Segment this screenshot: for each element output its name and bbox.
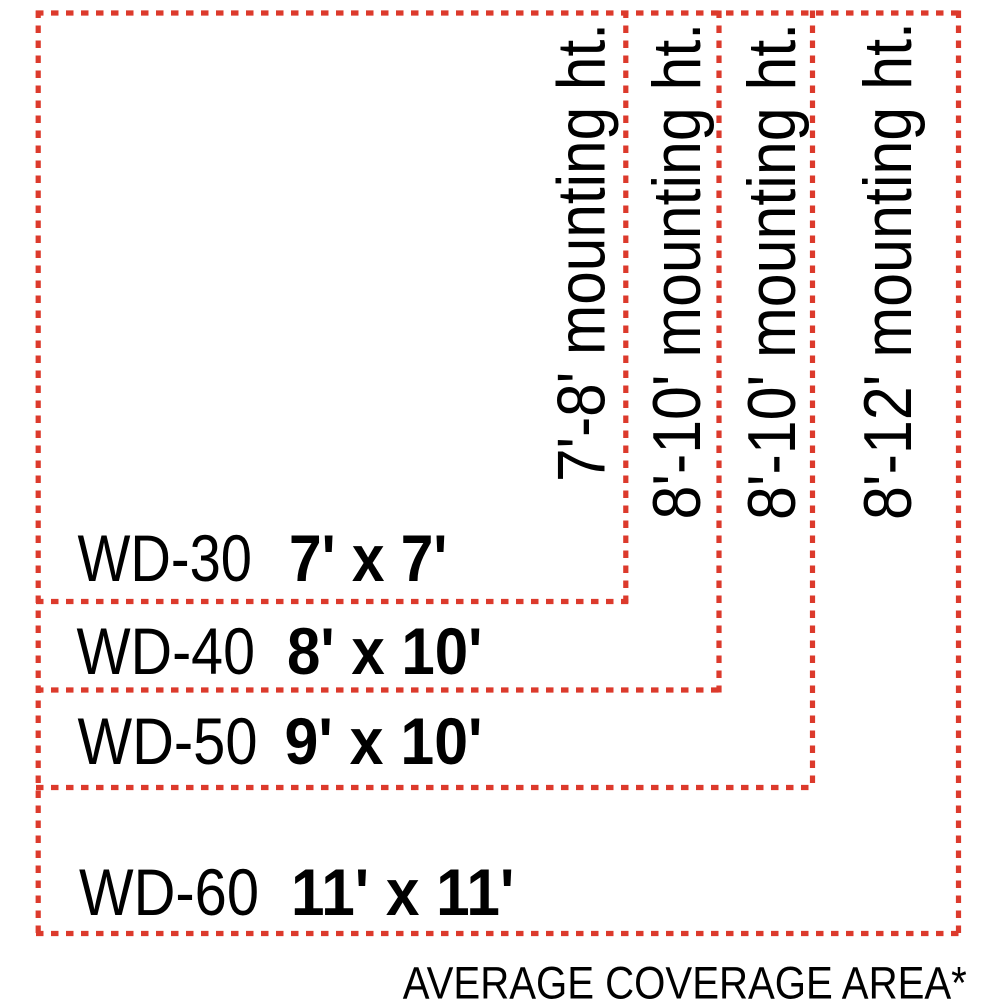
svg-text:AVERAGE COVERAGE AREA*: AVERAGE COVERAGE AREA* [403, 958, 967, 1000]
svg-text:8'-10' mounting ht.: 8'-10' mounting ht. [639, 23, 715, 520]
svg-text:8'-12' mounting ht.: 8'-12' mounting ht. [850, 22, 926, 520]
svg-text:WD-60: WD-60 [79, 855, 259, 929]
svg-text:8'-10' mounting ht.: 8'-10' mounting ht. [734, 23, 810, 520]
svg-text:7' x 7': 7' x 7' [289, 521, 447, 595]
svg-text:7'-8' mounting ht.: 7'-8' mounting ht. [544, 23, 620, 482]
svg-text:8' x 10': 8' x 10' [287, 614, 482, 688]
svg-text:WD-30: WD-30 [78, 521, 253, 595]
svg-text:11' x 11': 11' x 11' [291, 855, 514, 929]
svg-text:WD-50: WD-50 [78, 704, 258, 778]
svg-text:9' x 10': 9' x 10' [285, 704, 483, 778]
svg-text:WD-40: WD-40 [77, 614, 256, 688]
